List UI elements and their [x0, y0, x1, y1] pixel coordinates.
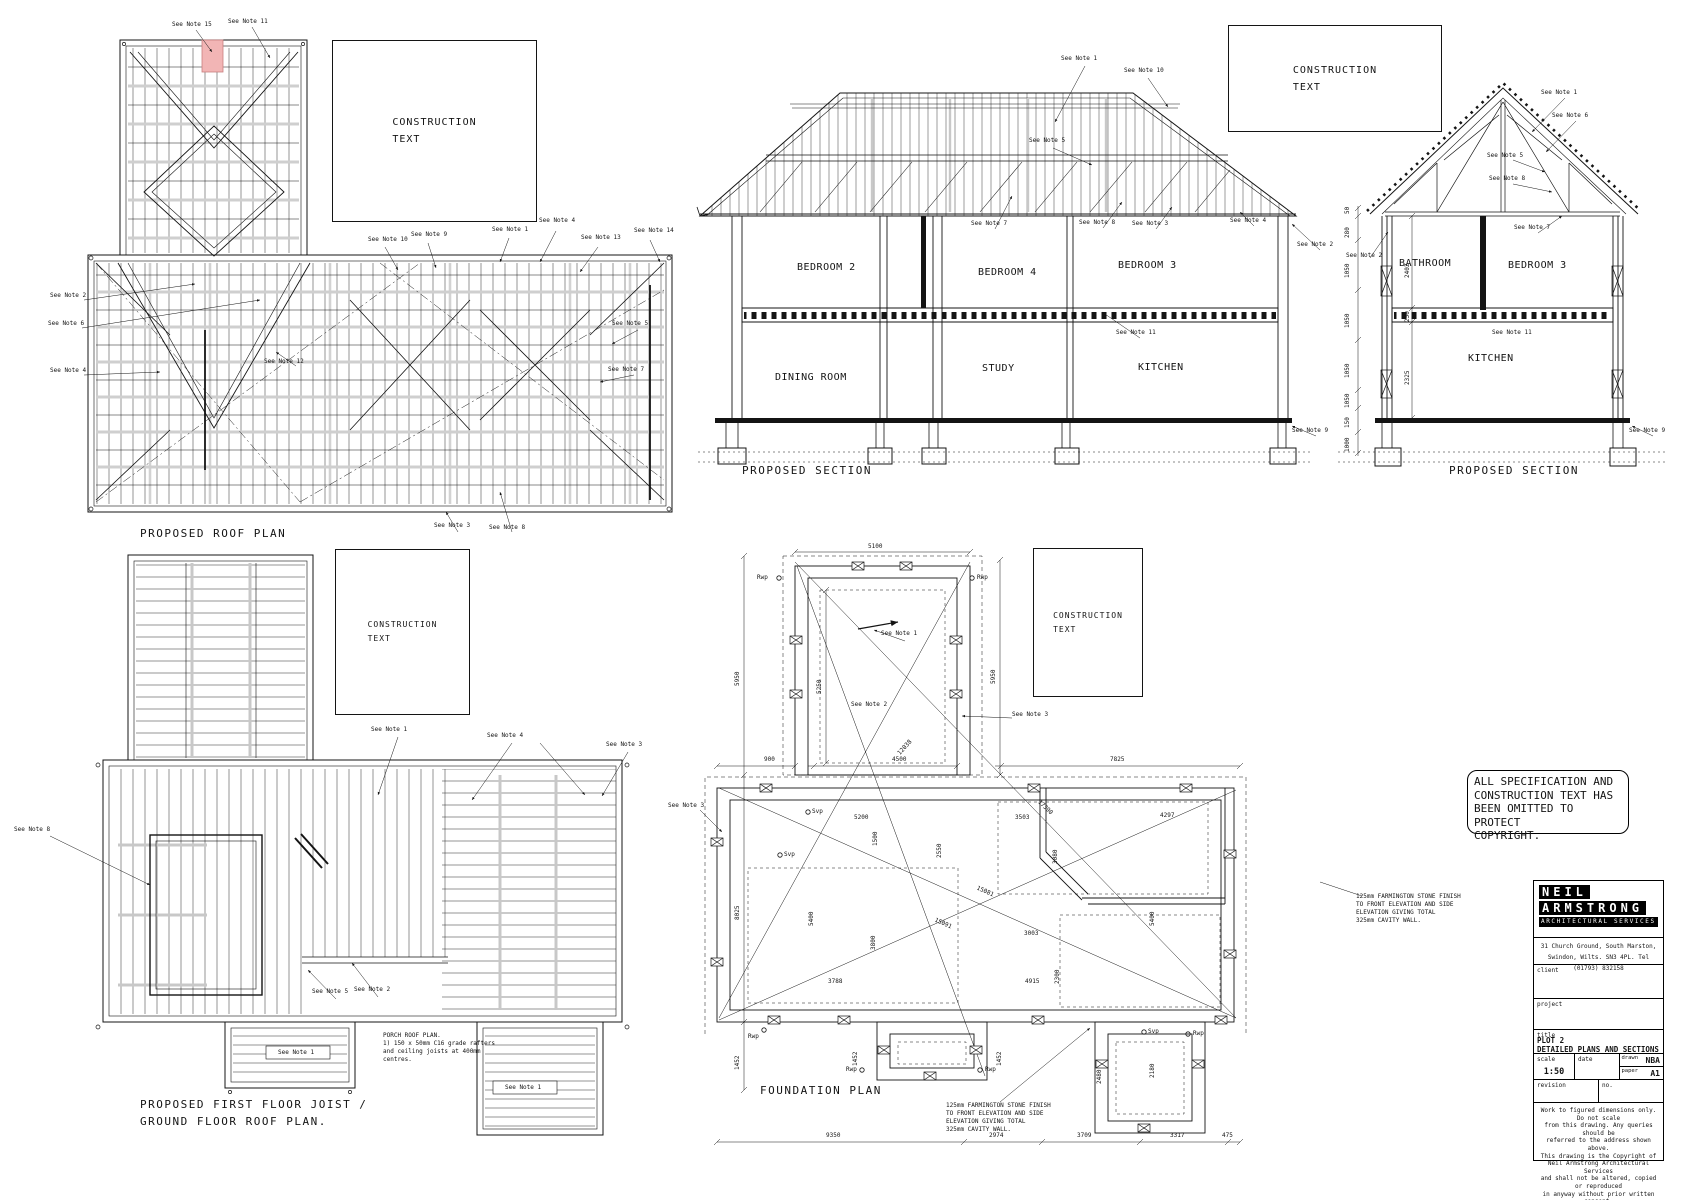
drawn-paper-cell: drawn NBA paper A1 — [1619, 1054, 1664, 1079]
paper-cell: paper A1 — [1620, 1066, 1664, 1079]
note-label: See Note 5 — [1487, 152, 1523, 160]
paper-label: paper — [1622, 1068, 1639, 1074]
dim-label: 2325 — [1404, 371, 1412, 385]
dim-label: 475 — [1222, 1132, 1233, 1140]
note-label: See Note 1 — [1541, 89, 1577, 97]
note-label: See Note 5 — [612, 320, 648, 328]
firm-logo: NEIL ARMSTRONG ARCHITECTURAL SERVICES — [1534, 881, 1663, 938]
dim-label: 1000 — [1344, 438, 1352, 452]
client-cell: client — [1534, 965, 1663, 999]
logo-neil: NEIL — [1539, 885, 1590, 899]
room-label-kitchen: KITCHEN — [1138, 362, 1184, 375]
rwp-label: Rwp — [985, 1066, 996, 1074]
paper-value: A1 — [1650, 1069, 1660, 1078]
scale-date-drawn-row: scale 1:50 date drawn NBA paper A1 — [1534, 1054, 1663, 1080]
note-label: See Note 6 — [48, 320, 84, 328]
construction-text-box-4: CONSTRUCTION TEXT — [1033, 548, 1143, 697]
dim-label: 5250 — [816, 680, 824, 694]
dim-label: 3317 — [1170, 1132, 1184, 1140]
logo-services: ARCHITECTURAL SERVICES — [1539, 917, 1658, 927]
note-label: See Note 9 — [1629, 427, 1665, 435]
note-label: See Note 5 — [312, 988, 348, 996]
dim-label: 3503 — [1015, 814, 1029, 822]
bold-partition — [921, 216, 926, 308]
note-label: See Note 11 — [228, 18, 268, 26]
note-label: See Note 3 — [668, 802, 704, 810]
section-a-title: PROPOSED SECTION — [742, 464, 872, 478]
dim-label: 2550 — [936, 844, 944, 858]
note-label: See Note 1 — [881, 630, 917, 638]
title-block: NEIL ARMSTRONG ARCHITECTURAL SERVICES 31… — [1533, 880, 1664, 1161]
room-label-dining: DINING ROOM — [775, 372, 847, 385]
room-label-study: STUDY — [982, 363, 1015, 376]
project-label: project — [1537, 1001, 1562, 1008]
dim-label: 1452 — [852, 1052, 860, 1066]
dim-label: 3003 — [1024, 930, 1038, 938]
svp-label: Svp — [784, 851, 795, 859]
porch-roof-note: PORCH ROOF PLAN. 1) 150 x 50mm C16 grade… — [383, 1032, 495, 1064]
revision-row: revision no. — [1534, 1080, 1663, 1103]
note-label: See Note 3 — [434, 522, 470, 530]
disclaimer-text: Work to figured dimensions only. Do not … — [1534, 1103, 1663, 1200]
drawn-label: drawn — [1622, 1055, 1639, 1061]
rwp-label: Rwp — [977, 574, 988, 582]
foundation-plan-drawing — [705, 549, 1246, 1145]
note-label: See Note 8 — [489, 524, 525, 532]
firm-address: 31 Church Ground, South Marston, Swindon… — [1534, 938, 1663, 965]
project-cell: project — [1534, 999, 1663, 1030]
dim-label: 1050 — [1344, 364, 1352, 378]
rwp-label: Rwp — [846, 1066, 857, 1074]
note-label: See Note 4 — [539, 217, 575, 225]
joist-plan-title-line2: GROUND FLOOR ROOF PLAN. — [140, 1115, 327, 1129]
dim-label: 2402 — [1404, 264, 1412, 278]
linework-layer — [0, 0, 1699, 1200]
dim-label: 900 — [764, 756, 775, 764]
drawn-value: NBA — [1646, 1056, 1660, 1065]
note-label: See Note 1 — [278, 1049, 314, 1057]
scale-cell: scale 1:50 — [1534, 1054, 1574, 1079]
date-cell: date — [1574, 1054, 1619, 1079]
note-label: See Note 13 — [581, 234, 621, 242]
construction-text: CONSTRUCTION TEXT — [1053, 609, 1123, 636]
dim-label: 150 — [1344, 417, 1352, 428]
dim-label: 3080 — [1052, 850, 1060, 864]
note-label: See Note 2 — [1297, 241, 1333, 249]
note-label: See Note 11 — [1116, 329, 1156, 337]
section-b-title: PROPOSED SECTION — [1449, 464, 1579, 478]
rwp-label: Rwp — [1193, 1030, 1204, 1038]
revision-cell: revision — [1534, 1080, 1598, 1102]
note-label: See Note 1 — [492, 226, 528, 234]
svp-label: Svp — [812, 808, 823, 816]
dim-label: 5950 — [990, 670, 998, 684]
note-label: See Note 14 — [634, 227, 674, 235]
copyright-notice-box: ALL SPECIFICATION AND CONSTRUCTION TEXT … — [1467, 770, 1629, 834]
dim-label: 280 — [1344, 227, 1352, 238]
title-cell: title PLOT 2 DETAILED PLANS AND SECTIONS — [1534, 1030, 1663, 1054]
dim-label: 9350 — [826, 1132, 840, 1140]
note-label: See Note 8 — [1079, 219, 1115, 227]
roof-plan-title: PROPOSED ROOF PLAN — [140, 527, 286, 541]
dim-label: 5100 — [868, 543, 882, 551]
construction-text: CONSTRUCTION TEXT — [392, 114, 476, 148]
note-label: See Note 9 — [411, 231, 447, 239]
scale-value: 1:50 — [1534, 1067, 1574, 1077]
note-label: See Note 4 — [50, 367, 86, 375]
address-line1: 31 Church Ground, South Marston, — [1534, 941, 1663, 952]
dim-label: 5950 — [734, 672, 742, 686]
dim-label: 5400 — [1149, 912, 1157, 926]
note-label: See Note 11 — [1492, 329, 1532, 337]
note-label: See Note 2 — [1346, 252, 1382, 260]
note-label: See Note 4 — [1230, 217, 1266, 225]
room-label-kitchen: KITCHEN — [1468, 353, 1514, 366]
room-label-bedroom4: BEDROOM 4 — [978, 267, 1037, 280]
note-label: See Note 7 — [971, 220, 1007, 228]
dim-label: 1050 — [1344, 394, 1352, 408]
stone-finish-note: 125mm FARMINGTON STONE FINISH TO FRONT E… — [946, 1102, 1051, 1134]
logo-armstrong: ARMSTRONG — [1539, 901, 1646, 915]
dim-label: 1500 — [872, 832, 880, 846]
note-label: See Note 3 — [1132, 220, 1168, 228]
dim-label: 5200 — [854, 814, 868, 822]
scale-label: scale — [1537, 1056, 1555, 1063]
note-label: See Note 7 — [608, 366, 644, 374]
svp-label: Svp — [1148, 1028, 1159, 1036]
dim-label: 1452 — [734, 1056, 742, 1070]
note-label: See Note 1 — [505, 1084, 541, 1092]
note-label: See Note 15 — [172, 21, 212, 29]
note-label: See Note 1 — [371, 726, 407, 734]
drawn-cell: drawn NBA — [1620, 1054, 1664, 1066]
dim-label: 4297 — [1160, 812, 1174, 820]
construction-text-box-1: CONSTRUCTION TEXT — [332, 40, 537, 222]
dim-label: 7825 — [1110, 756, 1124, 764]
dim-label: 1050 — [1344, 264, 1352, 278]
note-label: See Note 9 — [1292, 427, 1328, 435]
no-label: no. — [1602, 1082, 1613, 1089]
note-label: See Note 12 — [264, 358, 304, 366]
dim-label: 2180 — [1149, 1064, 1157, 1078]
dim-label: 3709 — [1077, 1132, 1091, 1140]
dim-label: 4915 — [1025, 978, 1039, 986]
note-label: See Note 6 — [1552, 112, 1588, 120]
room-label-bedroom3: BEDROOM 3 — [1508, 260, 1567, 273]
drawing-title: PLOT 2 DETAILED PLANS AND SECTIONS — [1537, 1037, 1659, 1054]
dim-label: 8025 — [734, 906, 742, 920]
note-label: See Note 4 — [487, 732, 523, 740]
dim-label: 2480 — [1096, 1070, 1104, 1084]
partition — [1480, 216, 1486, 310]
construction-text: CONSTRUCTION TEXT — [1293, 62, 1377, 96]
stone-finish-note: 125mm FARMINGTON STONE FINISH TO FRONT E… — [1356, 893, 1461, 925]
construction-text: CONSTRUCTION TEXT — [368, 618, 438, 645]
note-label: See Note 2 — [851, 701, 887, 709]
rwp-label: Rwp — [748, 1033, 759, 1041]
no-cell: no. — [1598, 1080, 1663, 1102]
note-label: See Note 8 — [14, 826, 50, 834]
note-label: See Note 7 — [1514, 224, 1550, 232]
drawing-sheet: CONSTRUCTION TEXT CONSTRUCTION TEXT CONS… — [0, 0, 1699, 1200]
dim-label: 4500 — [892, 756, 906, 764]
dim-label: 3788 — [828, 978, 842, 986]
dim-label: 3800 — [870, 936, 878, 950]
dim-label: 1050 — [1344, 314, 1352, 328]
note-label: See Note 2 — [354, 986, 390, 994]
construction-text-box-3: CONSTRUCTION TEXT — [335, 549, 470, 715]
note-label: See Note 2 — [50, 292, 86, 300]
revision-label: revision — [1537, 1082, 1566, 1089]
date-label: date — [1578, 1056, 1592, 1063]
joist-plan-title-line1: PROPOSED FIRST FLOOR JOIST / — [140, 1098, 367, 1112]
note-label: See Note 3 — [1012, 711, 1048, 719]
dim-label: 250 — [1404, 311, 1412, 322]
dim-label: 1452 — [996, 1052, 1004, 1066]
foundation-plan-title: FOUNDATION PLAN — [760, 1084, 882, 1098]
note-label: See Note 1 — [1061, 55, 1097, 63]
section-b-drawing — [1338, 83, 1668, 466]
rwp-label: Rwp — [757, 574, 768, 582]
note-label: See Note 5 — [1029, 137, 1065, 145]
construction-text-box-2: CONSTRUCTION TEXT — [1228, 25, 1442, 132]
dim-label: 5400 — [808, 912, 816, 926]
dim-label: 2974 — [989, 1132, 1003, 1140]
dim-label: 2300 — [1054, 970, 1062, 984]
note-label: See Note 10 — [1124, 67, 1164, 75]
room-label-bedroom3: BEDROOM 3 — [1118, 260, 1177, 273]
note-label: See Note 10 — [368, 236, 408, 244]
note-label: See Note 8 — [1489, 175, 1525, 183]
client-label: client — [1537, 967, 1559, 974]
roof-highlight — [202, 40, 223, 72]
room-label-bedroom2: BEDROOM 2 — [797, 262, 856, 275]
dim-label: 50 — [1344, 207, 1352, 214]
note-label: See Note 3 — [606, 741, 642, 749]
